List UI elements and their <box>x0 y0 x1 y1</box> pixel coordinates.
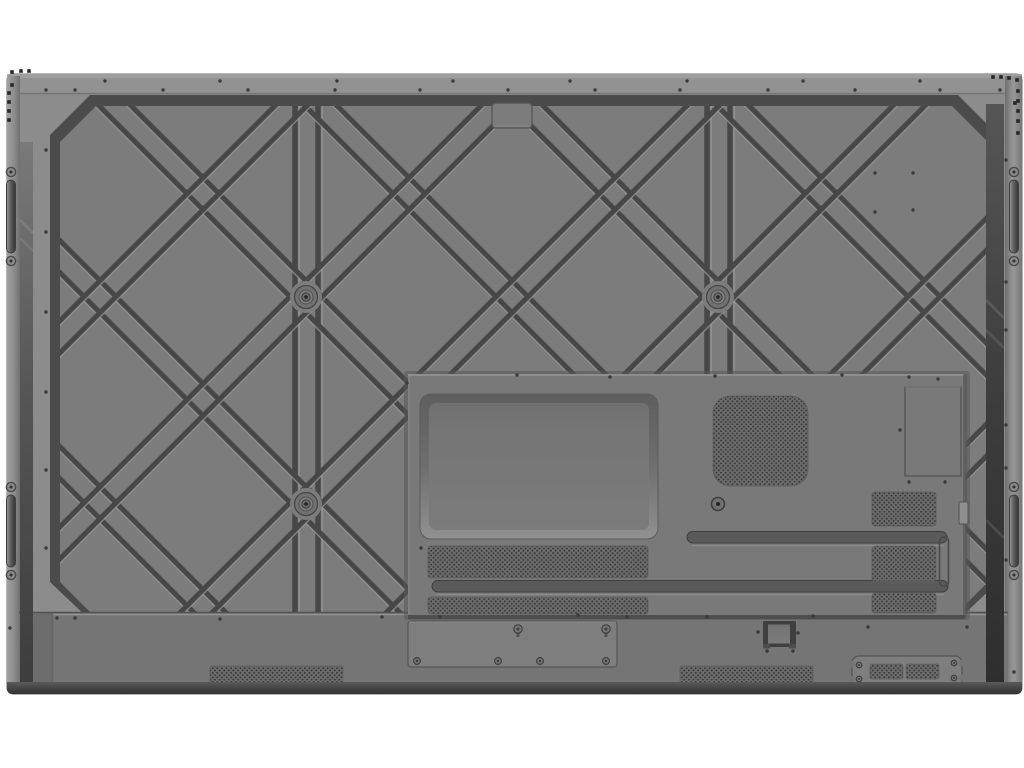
bottom-center-plate: Bottom connection plate <box>408 621 617 667</box>
product-photo: Rear view photograph of a large wall-mou… <box>0 0 1024 768</box>
wall-hook-bracket: Wall-mount hook bracket <box>763 621 796 649</box>
carrying-handle <box>1009 167 1018 265</box>
bottom-edge-lip <box>7 682 1022 694</box>
ops-bay-cover: OPS bay cover plate <box>420 394 658 539</box>
module-screw <box>712 498 725 511</box>
photo-stage: Rear view photograph of a large wall-mou… <box>0 0 1024 768</box>
top-hanger-tab: Top hanger tab <box>492 103 532 128</box>
carrying-handle <box>6 482 15 579</box>
carrying-handle <box>1009 482 1018 579</box>
module-side-clip <box>959 502 968 524</box>
carrying-handle <box>6 167 15 265</box>
ventilation-grid: Ventilation perforation grid <box>713 396 808 486</box>
